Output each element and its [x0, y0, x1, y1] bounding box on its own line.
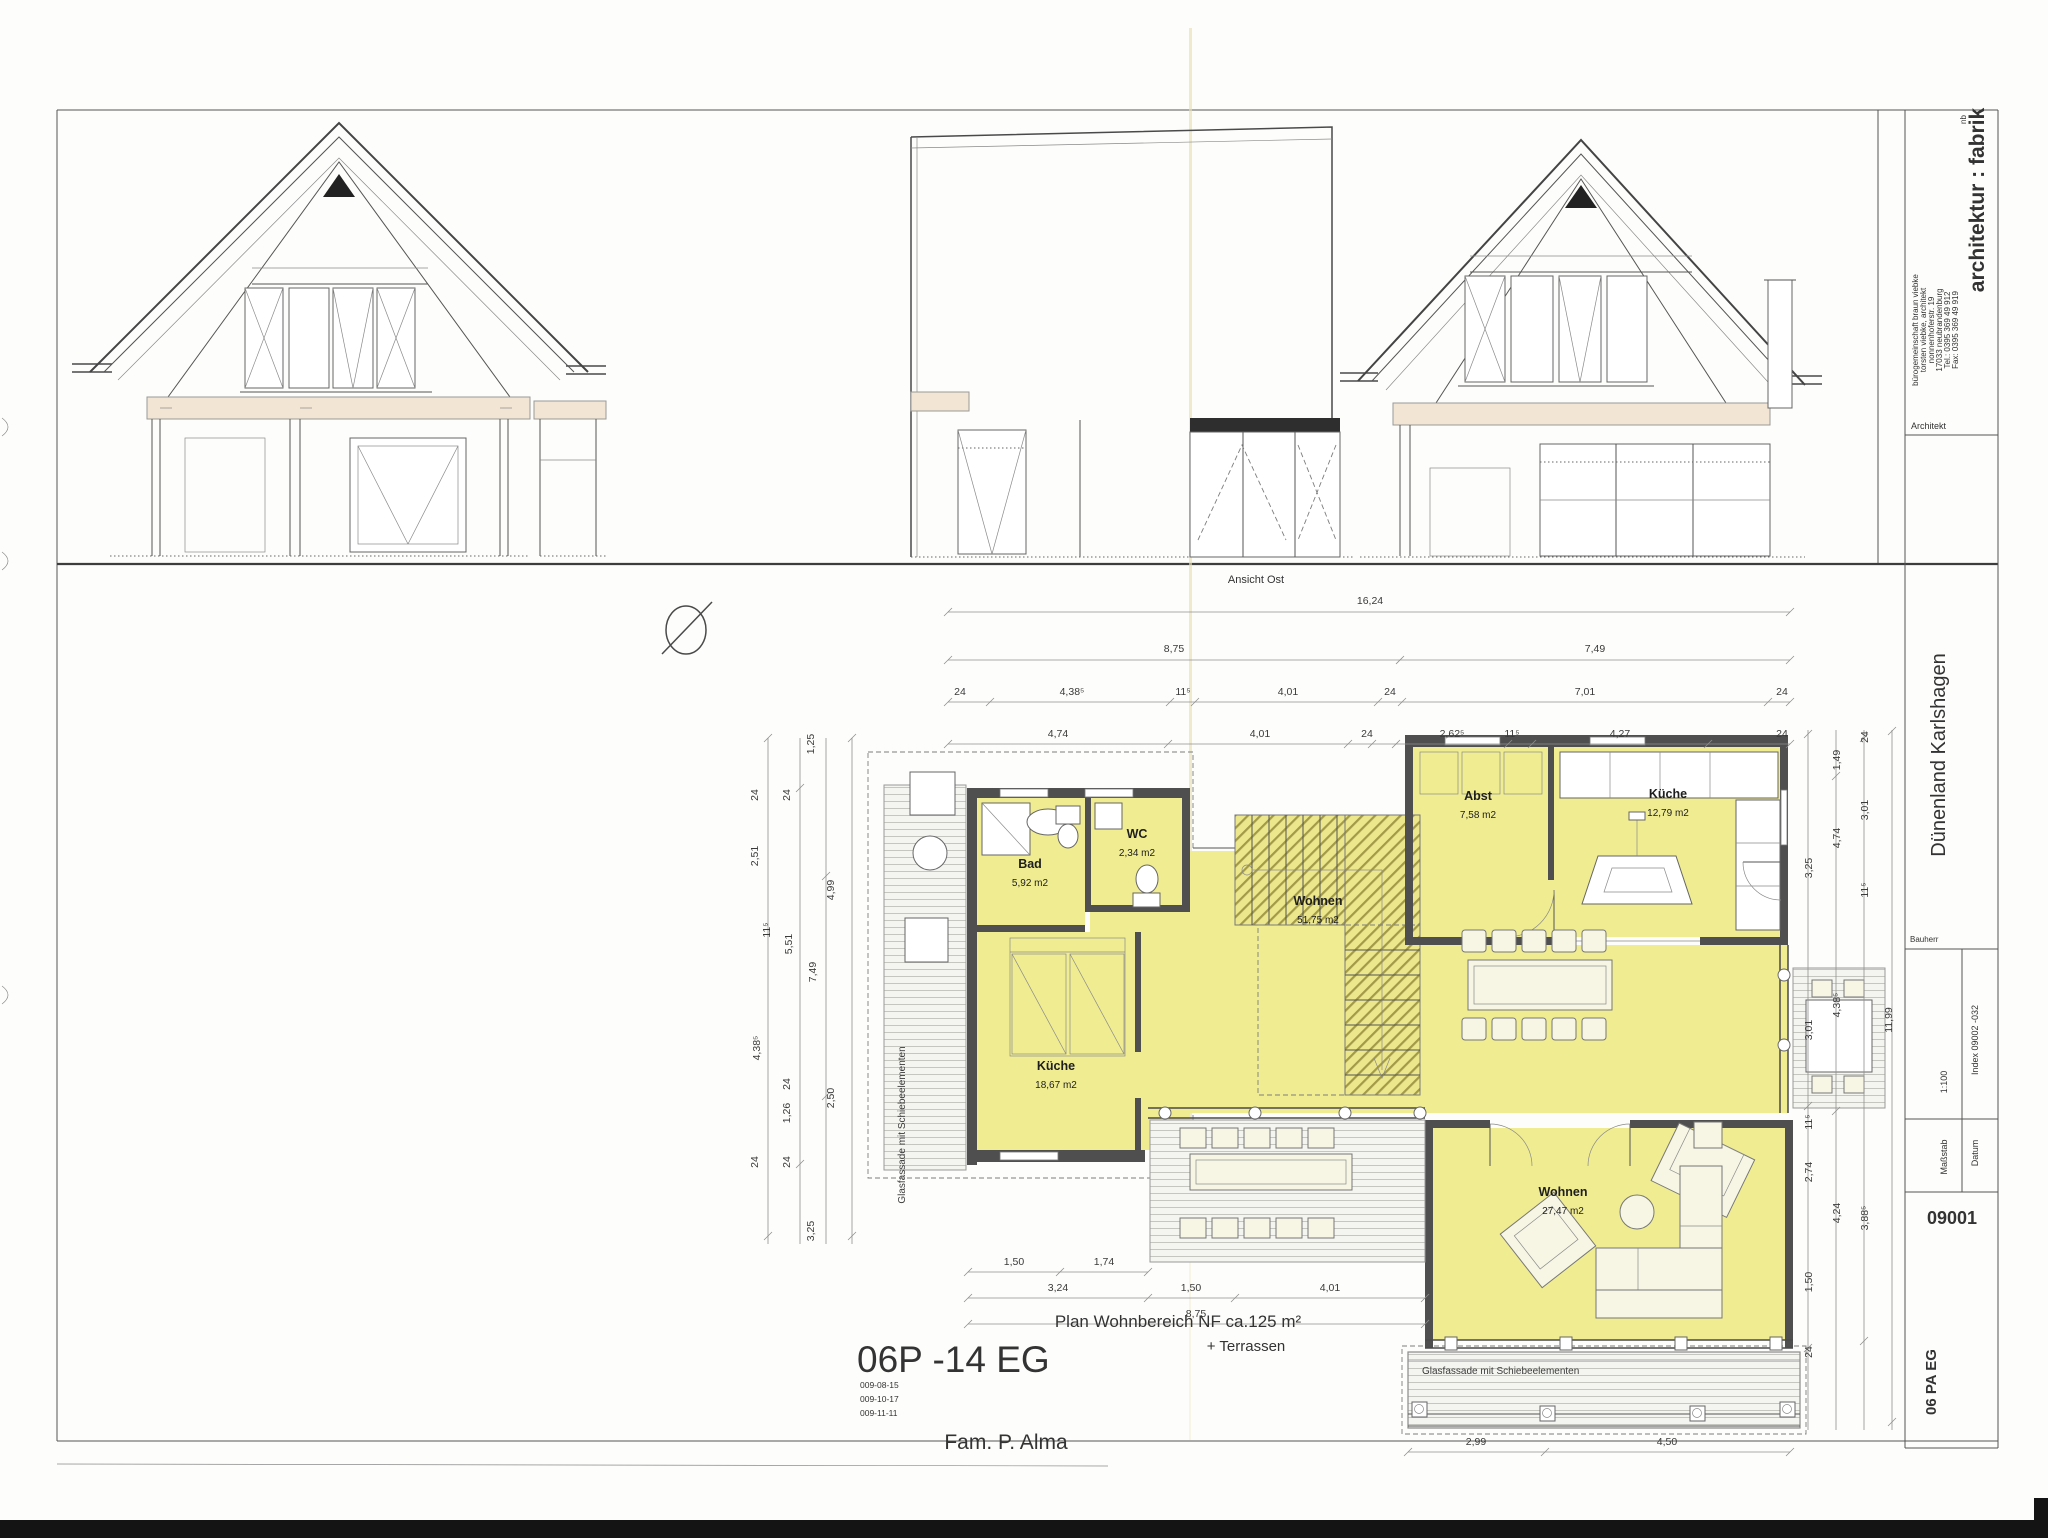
dim-right-4: 3,25	[1803, 858, 1815, 879]
dim-top-14: 11⁵	[1504, 728, 1519, 740]
dim-bottom-4: 4,01	[1320, 1282, 1341, 1294]
dim-top-9: 24	[1776, 686, 1788, 698]
room-kueche1-area: 12,79 m2	[1647, 808, 1689, 819]
date-label: Datum	[1970, 1140, 1980, 1167]
dim-right-10: 2,74	[1803, 1162, 1815, 1183]
room-wohnen1-area: 51,75 m2	[1297, 915, 1339, 926]
dim-right-7: 3,01	[1803, 1020, 1815, 1041]
room-wohnen1-name: Wohnen	[1293, 894, 1342, 908]
dim-top-10: 4,74	[1048, 728, 1069, 740]
dim-right-2: 3,01	[1859, 800, 1871, 821]
dim-top-6: 4,01	[1278, 686, 1299, 698]
dim-left-14: 3,25	[805, 1221, 817, 1242]
dim-bottom-3: 1,50	[1181, 1282, 1202, 1294]
dim-bottom-2: 3,24	[1048, 1282, 1069, 1294]
client-name: Fam. P. Alma	[944, 1431, 1068, 1454]
room-bad-area: 5,92 m2	[1012, 878, 1049, 889]
dim-bottom-1: 1,74	[1094, 1256, 1115, 1268]
dim-left-9: 24	[781, 1078, 793, 1090]
room-wohnen2-area: 27,47 m2	[1542, 1206, 1584, 1217]
terrace-bottom-center	[1150, 1120, 1425, 1262]
revision-1: 009-08-15	[860, 1380, 899, 1390]
dim-left-6: 4,99	[825, 880, 837, 901]
dim-top-11: 4,01	[1250, 728, 1271, 740]
brand-logo: architektur : fabrik	[1966, 107, 1989, 292]
dim-right-8: 11,99	[1883, 1007, 1895, 1033]
room-wc-area: 2,34 m2	[1119, 848, 1156, 859]
revision-2: 009-10-17	[860, 1394, 899, 1404]
dim-top-7: 24	[1384, 686, 1396, 698]
room-wohnen2-name: Wohnen	[1538, 1185, 1587, 1199]
dim-top-15: 4,27	[1610, 728, 1631, 740]
scale-label: Maßstab	[1939, 1139, 1949, 1174]
dim-top-13: 2,62⁵	[1440, 728, 1465, 740]
client-label: Bauherr	[1910, 935, 1939, 944]
dim-right-0: 1,49	[1831, 750, 1843, 771]
architect-label: Architekt	[1911, 421, 1947, 431]
elevation-left-house	[72, 123, 606, 556]
plan-annotations: 06P -14 EG 009-08-15 009-10-17 009-11-11…	[857, 1312, 1301, 1454]
dim-right-13: 1,50	[1803, 1272, 1815, 1293]
view-label: Ansicht Ost	[1228, 574, 1284, 586]
north-symbol	[662, 602, 712, 654]
dim-top-2: 7,49	[1585, 643, 1606, 655]
dim-left-3: 2,51	[749, 846, 761, 867]
dim-left-11: 2,50	[825, 1088, 837, 1109]
glass-facade-note-bottom: Glasfassade mit Schiebeelementen	[1422, 1366, 1579, 1377]
dim-top-4: 4,38⁵	[1060, 686, 1085, 698]
room-wc-name: WC	[1127, 827, 1148, 841]
dim-right-11: 4,24	[1831, 1203, 1843, 1224]
room-kueche2-area: 18,67 m2	[1035, 1080, 1077, 1091]
room-abst-fill	[1413, 747, 1548, 937]
room-bad-name: Bad	[1018, 857, 1042, 871]
drawing-sheet: Ansicht Ost Glasfassade mit Schiebeeleme…	[0, 0, 2048, 1538]
dim-left-8: 4,38⁵	[751, 1036, 763, 1061]
dim-top-5: 11⁵	[1175, 686, 1190, 698]
dim-left-13: 24	[781, 1156, 793, 1168]
dim-top-12: 24	[1361, 728, 1373, 740]
office-line-6: Fax: 0395 369 49 919	[1951, 291, 1960, 369]
floor-plan: Glasfassade mit Schiebeelementen	[868, 735, 1885, 1434]
dim-top-1: 8,75	[1164, 643, 1185, 655]
dim-left-7: 7,49	[807, 962, 819, 983]
dim-terrace-1: 4,50	[1657, 1436, 1678, 1448]
dimensions-top: 16,24 8,75 7,49 24 4,38⁵ 11⁵ 4,01 24 7,0…	[944, 595, 1794, 748]
project-name: Dünenland Karlshagen	[1928, 653, 1950, 857]
dim-terrace-0: 2,99	[1466, 1436, 1487, 1448]
room-kueche1-name: Küche	[1649, 787, 1687, 801]
dim-top-3: 24	[954, 686, 966, 698]
dining-set	[1462, 930, 1612, 1040]
room-abst-area: 7,58 m2	[1460, 810, 1497, 821]
sheet-code: 06 PA EG	[1923, 1349, 1940, 1415]
dim-left-0: 1,25	[805, 734, 817, 755]
dim-right-5: 11⁵	[1859, 882, 1871, 897]
elevation-middle-building	[911, 127, 1355, 557]
dim-left-10: 1,26	[781, 1103, 793, 1124]
plan-subtitle: + Terrassen	[1207, 1338, 1286, 1355]
dim-right-9: 11⁵	[1803, 1114, 1815, 1129]
glass-facade-note-left: Glasfassade mit Schiebeelementen	[897, 1046, 908, 1203]
dim-top-8: 7,01	[1575, 686, 1596, 698]
scale-value: 1:100	[1939, 1071, 1949, 1094]
dim-left-2: 24	[781, 789, 793, 801]
index-value: Index 09002 -032	[1970, 1005, 1980, 1075]
drawing-code: 06P -14 EG	[857, 1339, 1050, 1380]
dim-left-1: 24	[749, 789, 761, 801]
revision-3: 009-11-11	[860, 1408, 898, 1418]
dim-left-4: 11⁵	[761, 922, 773, 937]
dim-left-12: 24	[749, 1156, 761, 1168]
dim-bottom-0: 1,50	[1004, 1256, 1025, 1268]
dimensions-left: 1,25 24 24 2,51 11⁵ 5,51 4,99 7,49 4,38⁵…	[749, 734, 856, 1244]
dim-left-5: 5,51	[783, 934, 795, 955]
plan-number: 09001	[1927, 1208, 1977, 1228]
drawing-canvas: Ansicht Ost Glasfassade mit Schiebeeleme…	[0, 0, 2048, 1538]
dim-top-16: 24	[1776, 728, 1788, 740]
title-block: nb architektur : fabrik bürogemeinschaft…	[1905, 107, 1998, 1448]
terrace-bottom-right	[1408, 1352, 1800, 1428]
dim-right-12: 3,88⁵	[1859, 1206, 1871, 1231]
dim-top-0: 16,24	[1357, 595, 1383, 607]
dim-right-14: 24	[1803, 1346, 1815, 1358]
dim-right-3: 4,74	[1831, 828, 1843, 849]
room-kueche2-name: Küche	[1037, 1059, 1075, 1073]
dim-right-1: 24	[1859, 731, 1871, 743]
room-abst-name: Abst	[1464, 789, 1493, 803]
dim-right-6: 4,38⁵	[1831, 993, 1843, 1018]
plan-title: Plan Wohnbereich NF ca.125 m²	[1055, 1312, 1302, 1331]
elevation-right-house	[1340, 140, 1822, 557]
